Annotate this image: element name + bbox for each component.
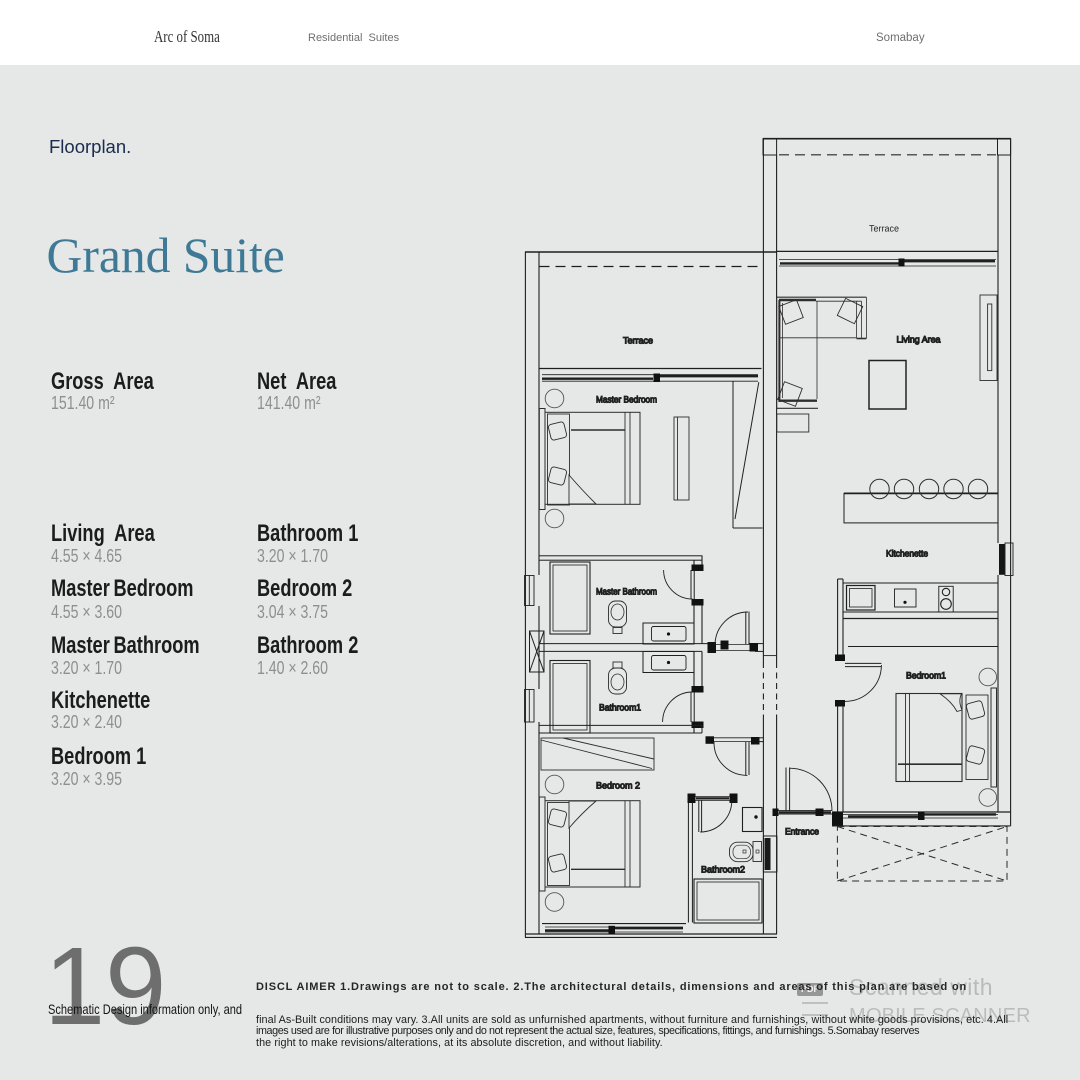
svg-text:Entrance: Entrance [785, 827, 819, 837]
svg-text:Kitchenette: Kitchenette [886, 549, 928, 559]
svg-text:Bedroom 2: Bedroom 2 [596, 781, 640, 791]
svg-text:Terrace: Terrace [623, 336, 653, 346]
svg-text:Living Area: Living Area [897, 335, 942, 345]
svg-text:Master Bedroom: Master Bedroom [596, 395, 657, 405]
svg-text:Bathroom1: Bathroom1 [599, 703, 641, 713]
svg-text:Terrace: Terrace [869, 224, 899, 234]
svg-text:Master Bathroom: Master Bathroom [596, 587, 657, 597]
svg-text:Bathroom2: Bathroom2 [701, 865, 745, 875]
svg-text:Bedroom1: Bedroom1 [906, 671, 946, 681]
